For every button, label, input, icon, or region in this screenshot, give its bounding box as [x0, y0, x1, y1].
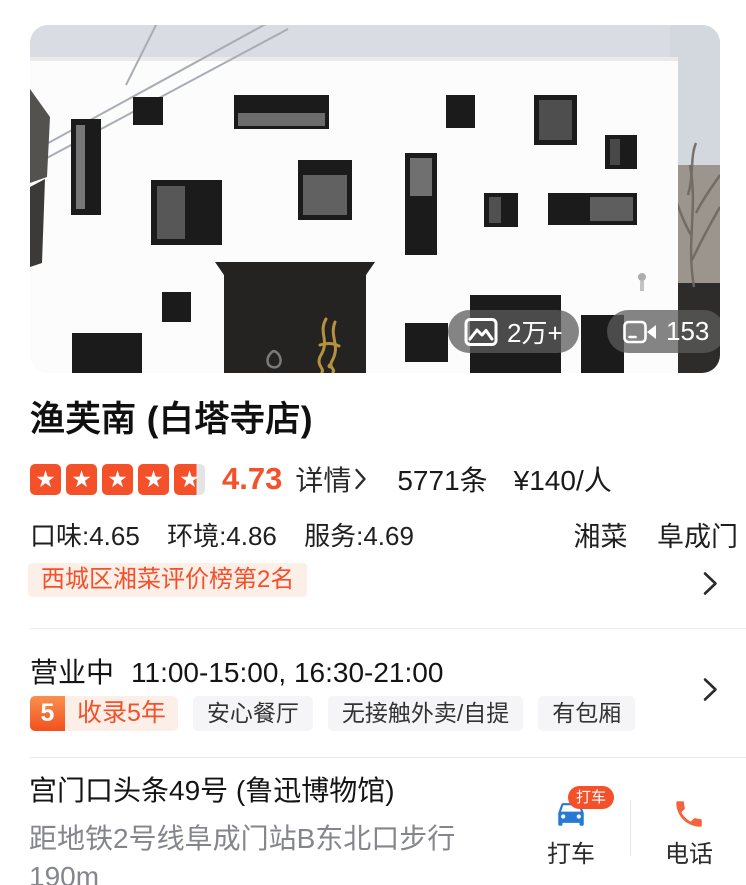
listed-years-badge: 5 收录5年: [30, 696, 178, 731]
taste-score: 口味:4.65: [30, 521, 140, 551]
tag-private-room: 有包厢: [538, 696, 635, 731]
years-label: 收录5年: [65, 696, 178, 731]
star-icon: ★: [138, 464, 169, 495]
section-divider: [30, 757, 746, 758]
star-icon: ★: [102, 464, 133, 495]
star-partial: ★: [174, 464, 205, 495]
rating-score: 4.73: [222, 461, 282, 497]
metro-distance-line2: 190m: [29, 858, 509, 885]
rating-details-link[interactable]: 详情: [295, 459, 367, 499]
phone-icon: [672, 797, 706, 831]
restaurant-photo[interactable]: 2万+ 153: [30, 25, 720, 373]
photos-count: 2万+: [507, 313, 563, 350]
avg-price: ¥140/人: [514, 459, 612, 499]
videos-count: 153: [666, 316, 709, 347]
photos-count-badge[interactable]: 2万+: [448, 310, 579, 353]
star-icon: ★: [30, 464, 61, 495]
review-count[interactable]: 5771条: [397, 459, 487, 499]
chevron-right-icon: [354, 468, 367, 490]
cuisine-tag[interactable]: 湘菜: [573, 522, 627, 552]
action-divider: [630, 800, 631, 856]
address-line: 宫门口头条49号 (鲁迅博物馆): [29, 769, 509, 809]
star-icon: ★: [66, 464, 97, 495]
ranking-banner[interactable]: 西城区湘菜评价榜第2名: [28, 563, 307, 597]
chevron-right-icon[interactable]: [701, 571, 719, 596]
years-number: 5: [30, 696, 65, 731]
area-tag[interactable]: 阜成门: [657, 522, 738, 552]
video-camera-icon: [623, 319, 657, 345]
metro-distance-line1: 距地铁2号线阜成门站B东北口步行: [29, 820, 509, 858]
picture-icon: [464, 317, 498, 347]
business-hours[interactable]: 营业中11:00-15:00, 16:30-21:00: [30, 651, 443, 691]
feature-tags-row: 5 收录5年 安心餐厅 无接触外卖/自提 有包厢: [30, 696, 635, 731]
category-row: 湘菜 阜成门: [551, 515, 738, 554]
taxi-label: 打车: [538, 834, 604, 869]
chevron-right-icon[interactable]: [701, 677, 719, 702]
taxi-promo-badge: 打车: [568, 786, 614, 809]
tag-safe-restaurant: 安心餐厅: [193, 696, 313, 731]
phone-button[interactable]: 电话: [656, 786, 722, 869]
schedule-text: 11:00-15:00, 16:30-21:00: [131, 657, 443, 688]
section-divider: [30, 628, 746, 629]
taxi-button[interactable]: 打车 打车: [538, 786, 604, 869]
restaurant-detail-card: 2万+ 153 渔芙南 (白塔寺店) ★ ★ ★ ★ ★ 4.73 详情 577…: [0, 0, 746, 885]
rating-row: ★ ★ ★ ★ ★ 4.73 详情 5771条 ¥140/人: [30, 459, 612, 499]
sub-scores: 口味:4.65 环境:4.86 服务:4.69: [30, 516, 434, 553]
details-label: 详情: [295, 459, 351, 499]
tag-contactless-delivery: 无接触外卖/自提: [328, 696, 523, 731]
open-status: 营业中: [30, 657, 114, 688]
environment-score: 环境:4.86: [167, 521, 277, 551]
phone-label: 电话: [656, 834, 722, 869]
videos-count-badge[interactable]: 153: [607, 310, 720, 353]
address-block[interactable]: 宫门口头条49号 (鲁迅博物馆) 距地铁2号线阜成门站B东北口步行 190m: [29, 769, 509, 885]
service-score: 服务:4.69: [304, 521, 414, 551]
restaurant-name: 渔芙南 (白塔寺店): [30, 391, 313, 442]
